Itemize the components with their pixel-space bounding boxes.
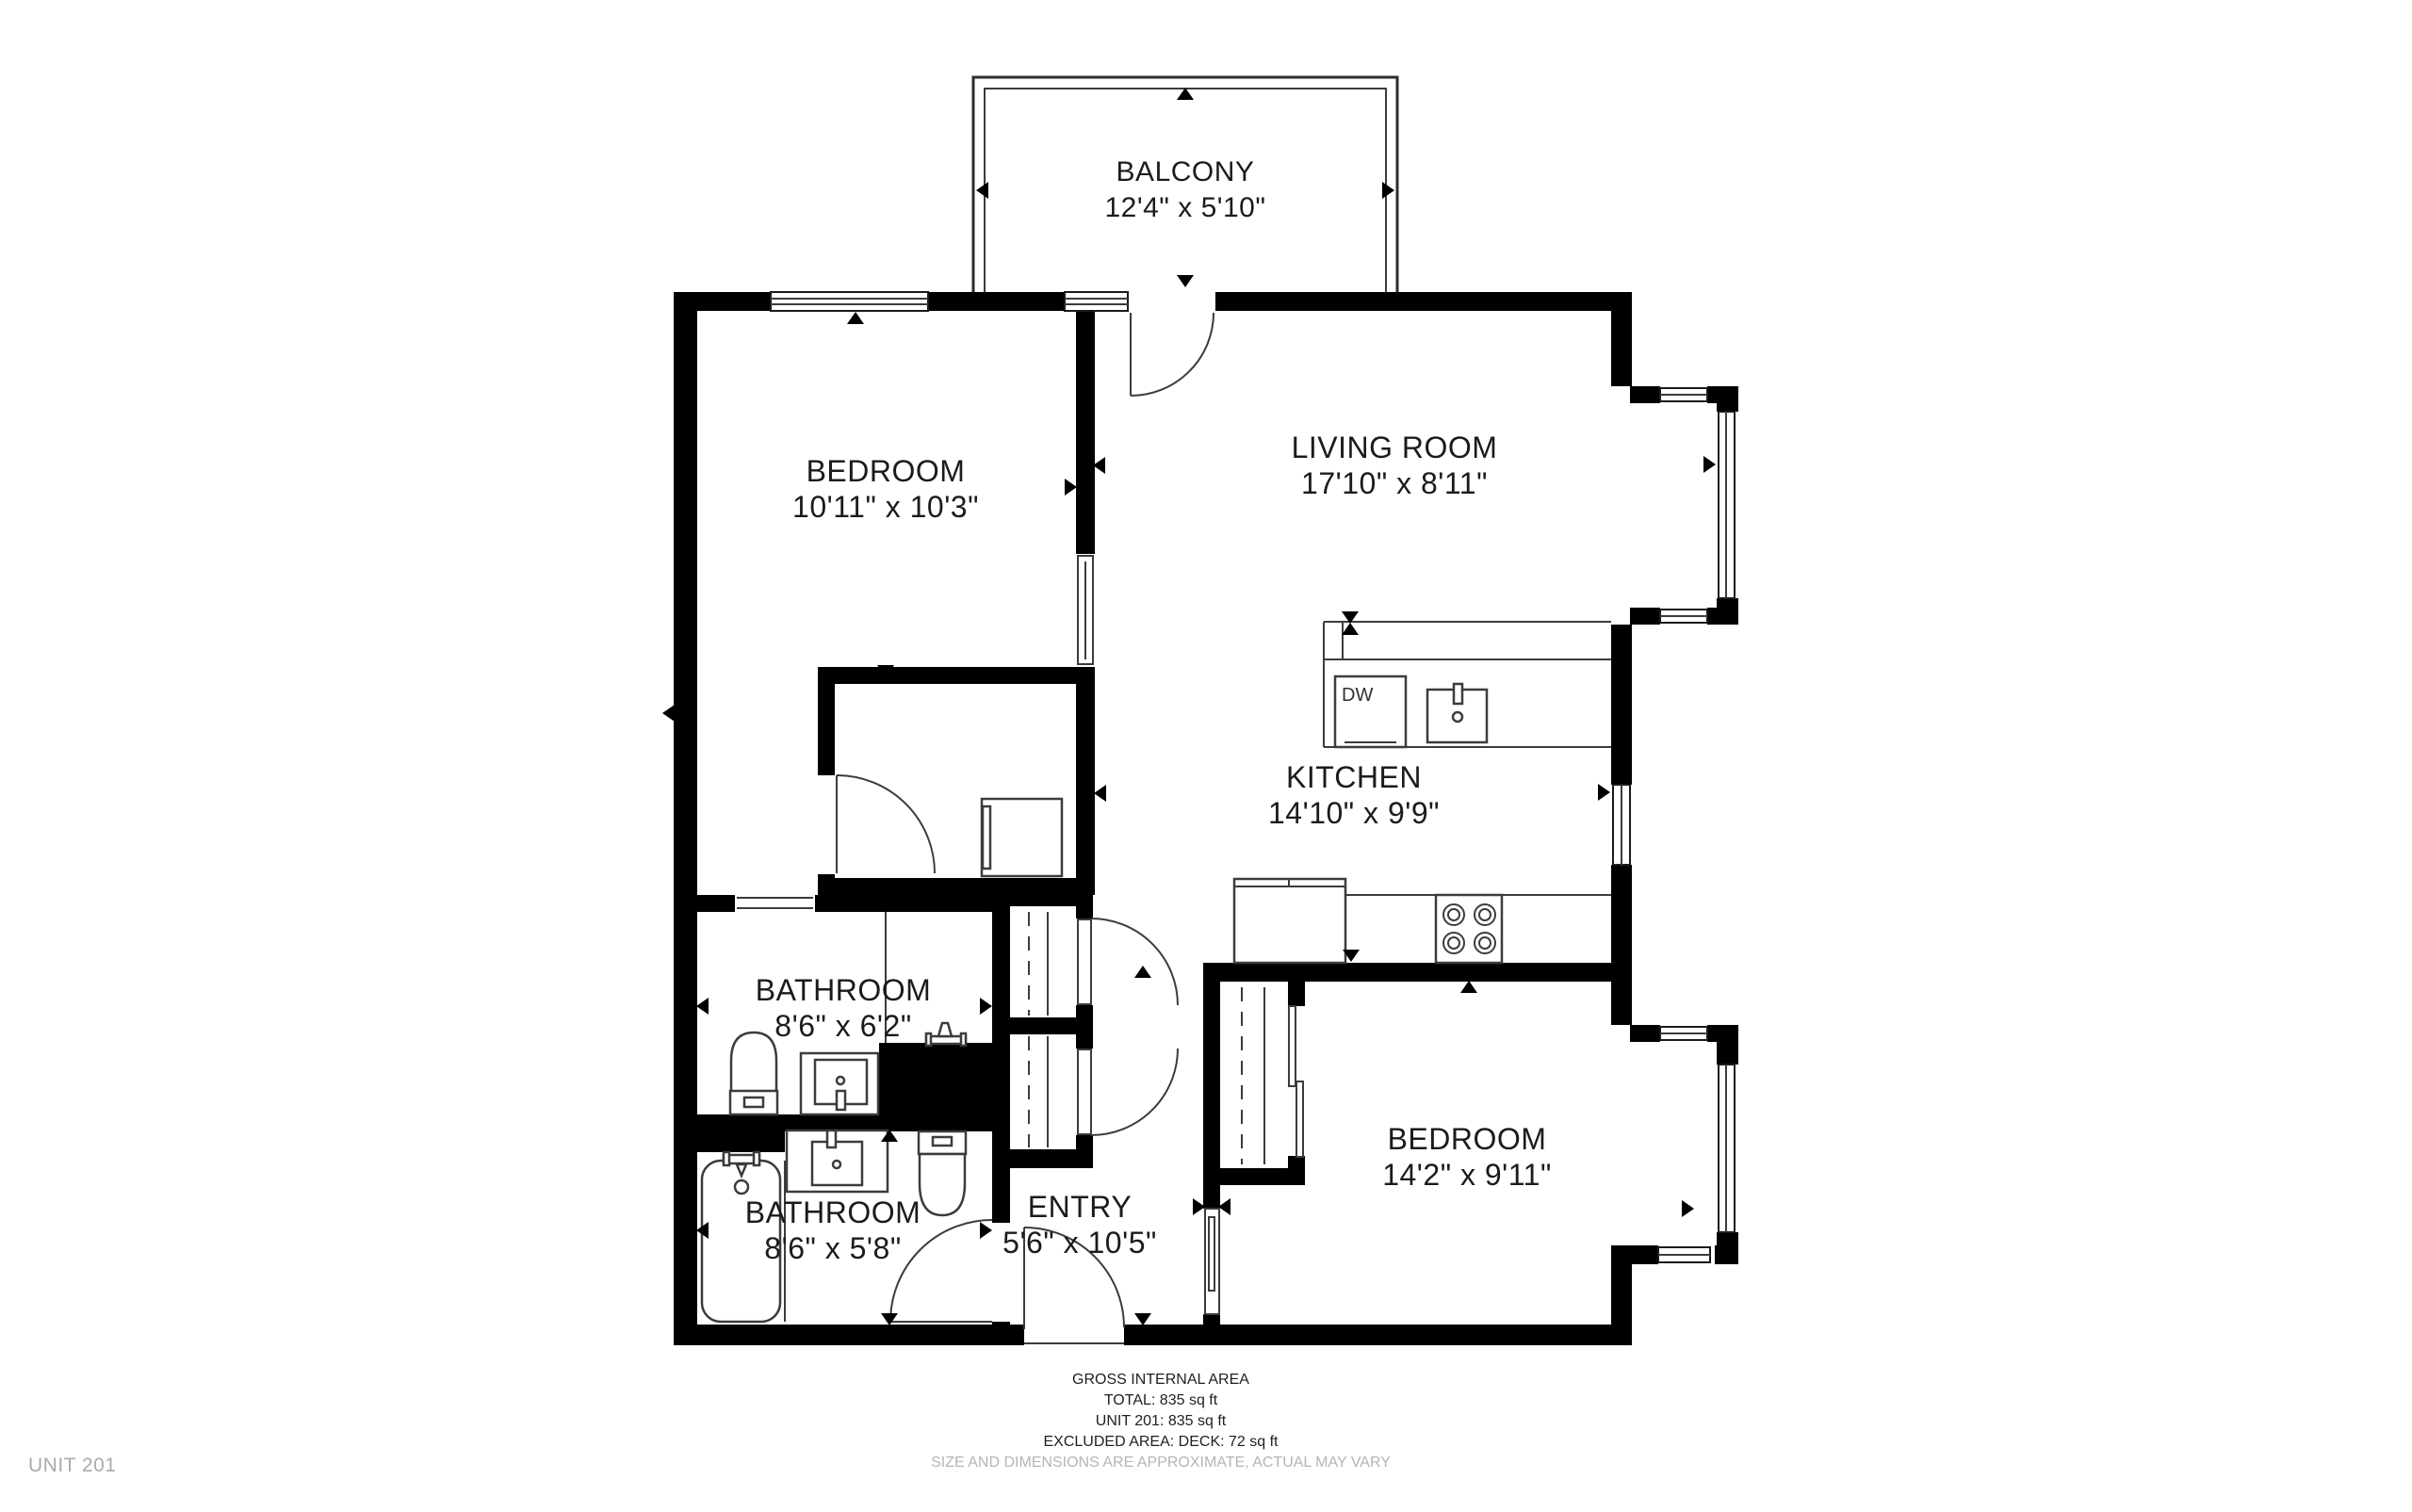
- kitchen-fixtures: DW: [1234, 622, 1611, 963]
- dishwasher-label: DW: [1342, 685, 1373, 706]
- area-excluded: EXCLUDED AREA: DECK: 72 sq ft: [931, 1432, 1391, 1453]
- dishwasher-icon: DW: [1335, 676, 1406, 747]
- bedroom1-sliding-door: [1078, 556, 1093, 664]
- stove-icon: [1436, 895, 1502, 963]
- kitchen-sink-icon: [1427, 684, 1487, 742]
- balcony-door: [1131, 313, 1214, 396]
- sink-icon: [801, 1053, 878, 1114]
- bathtub-icon: [702, 1152, 780, 1322]
- wardrobe-icon: [982, 799, 1062, 876]
- front-door: [1024, 1227, 1124, 1343]
- toilet-icon: [730, 1032, 777, 1114]
- floor-plan: DW: [0, 0, 2412, 1507]
- area-summary-title: GROSS INTERNAL AREA: [931, 1370, 1391, 1390]
- balcony-outline: [973, 77, 1397, 292]
- area-summary: GROSS INTERNAL AREA TOTAL: 835 sq ft UNI…: [931, 1370, 1391, 1473]
- bathroom1-opening: [737, 898, 813, 908]
- sink-icon: [787, 1130, 888, 1192]
- area-total: TOTAL: 835 sq ft: [931, 1390, 1391, 1411]
- shower-faucet-icon: [926, 1023, 966, 1046]
- toilet-icon: [919, 1131, 966, 1215]
- disclaimer: SIZE AND DIMENSIONS ARE APPROXIMATE, ACT…: [931, 1453, 1391, 1473]
- fridge-icon: [1234, 879, 1345, 963]
- area-unit: UNIT 201: 835 sq ft: [931, 1411, 1391, 1432]
- unit-label: UNIT 201: [28, 1455, 117, 1477]
- closet-rods: [1029, 912, 1264, 1164]
- floor-plan-drawing: DW: [0, 0, 2412, 1507]
- bedroom2-pocket-door: [1205, 1209, 1219, 1314]
- closet-room-door: [837, 775, 935, 873]
- bedroom2-closet-slider: [1289, 1006, 1303, 1157]
- bathroom2-door: [890, 1220, 992, 1322]
